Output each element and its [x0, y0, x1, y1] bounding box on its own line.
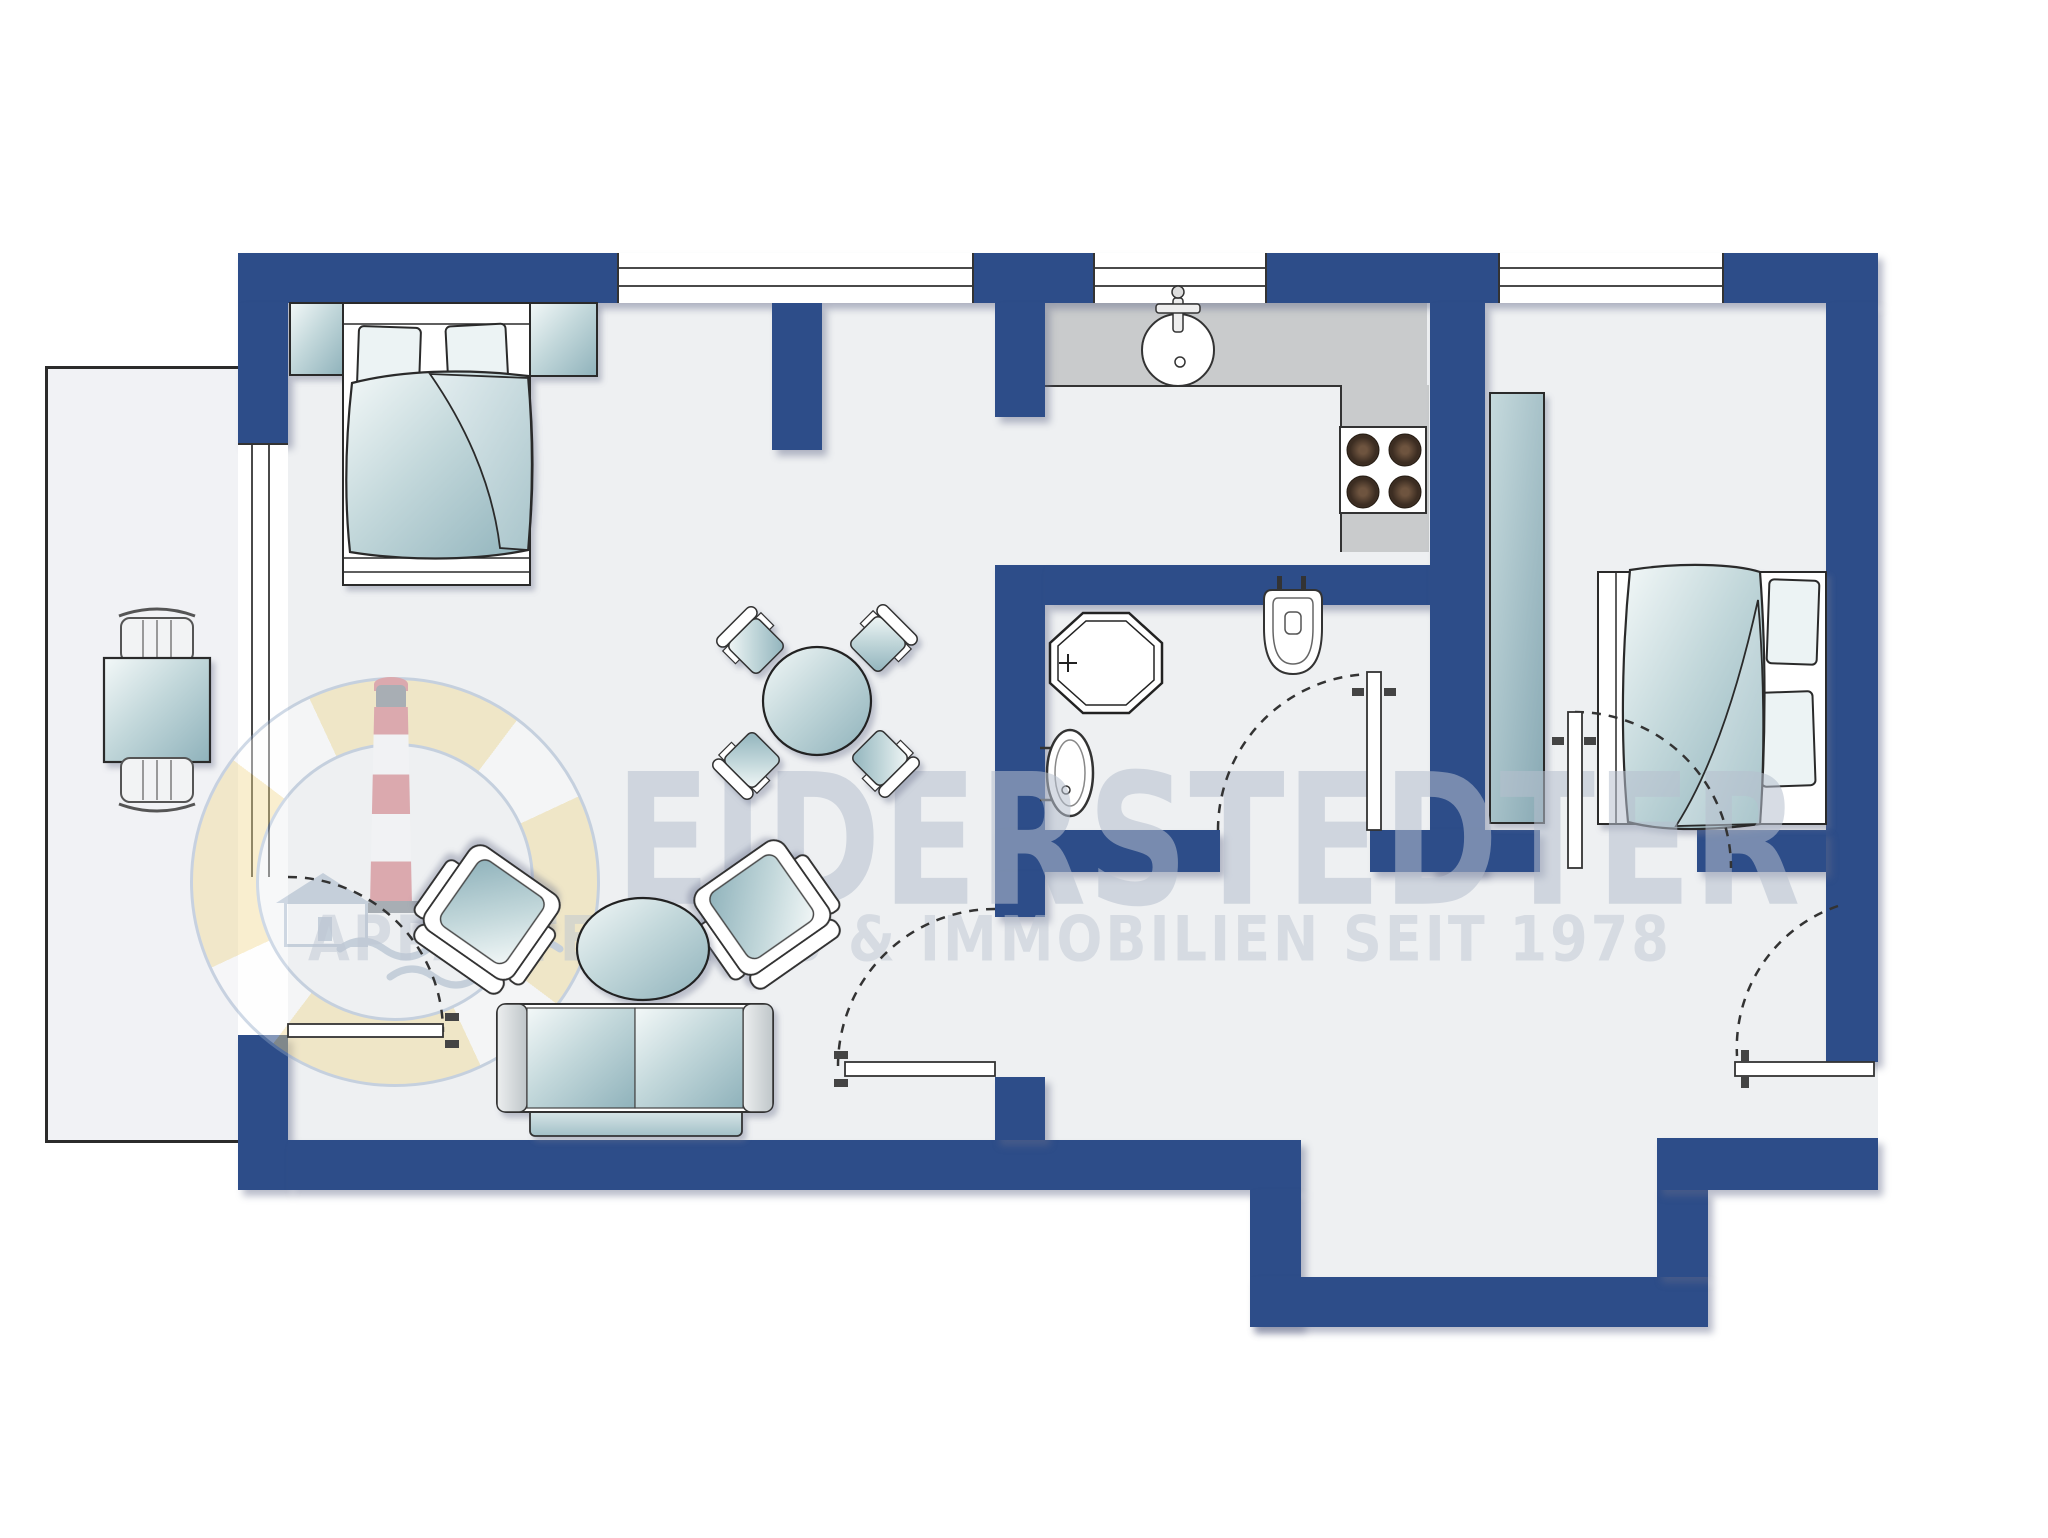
wall-right — [1826, 303, 1878, 1062]
vestibule-floor — [1301, 1140, 1657, 1277]
company-logo-watermark — [190, 677, 600, 1087]
window-living-top — [617, 253, 974, 303]
wall-kitchen-bath — [1045, 565, 1430, 605]
wall-vestibule-bottom — [1250, 1277, 1708, 1327]
wall-hall-stub-lower — [995, 1077, 1045, 1140]
window-kitchen — [1093, 253, 1267, 303]
entrance-doorway-floor — [1826, 1062, 1878, 1138]
wall-stub-dining — [772, 303, 822, 450]
kitchen-counter-top — [1045, 303, 1427, 387]
wall-bottom-living — [288, 1140, 1301, 1190]
wall-vestibule-right — [1657, 1190, 1708, 1277]
wall-bottom-right — [1657, 1138, 1878, 1190]
wall-left-upper — [238, 303, 288, 443]
watermark-company-tagline: APPARTEMENTS & IMMOBILIEN SEIT 1978 — [308, 903, 1672, 975]
floor-plan-canvas: EIDERSTEDTER APPARTEMENTS & IMMOBILIEN S… — [0, 0, 2048, 1538]
kitchen-counter-right — [1340, 385, 1429, 552]
wall-kitchen-left-upper — [995, 303, 1045, 417]
window-bedroom2 — [1498, 253, 1724, 303]
